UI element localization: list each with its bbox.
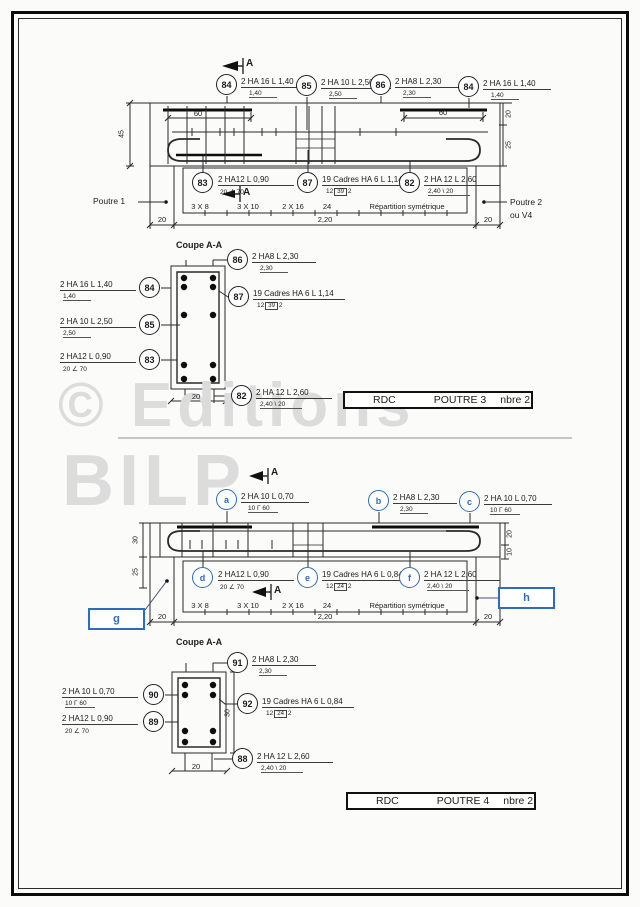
rebar-label-d: 2 HA12 L 0,90 [218,570,294,581]
callout-letter: b [376,496,382,506]
callout-87: 87 [297,172,318,193]
dim-end-20: 20 [478,612,498,621]
cut-label-a: A [271,467,278,478]
callout-number: 87 [233,292,243,302]
rebar-sub-c: 10 Γ 60 [490,507,520,515]
spacing-3x10: 3 X 10 [230,601,266,610]
rebar-sub-85: 2,50 [329,91,357,99]
callout-92: 92 [237,693,258,714]
callout-a: a [216,489,237,510]
callout-85: 85 [296,75,317,96]
cadre-height-boxed: 24 [334,583,347,591]
callout-84-coupe: 84 [139,277,160,298]
dim-coupe-height-30: 30 [225,709,232,717]
rebar-sub-a: 10 Γ 60 [248,505,278,513]
callout-85-coupe: 85 [139,314,160,335]
cadre-hook: 2 [348,188,352,195]
callout-f: f [399,567,420,588]
rebar-label-84b: 2 HA 16 L 1,40 [483,79,551,90]
cadre-dims-87: 12392 [326,188,352,196]
cadre-dims-e: 12242 [326,583,352,591]
spacing-3x10: 3 X 10 [230,202,266,211]
rebar-sub-f: 2,40 \ 20 [427,583,469,591]
watermark-bilp: BILP [62,440,246,522]
rebar-label-c: 2 HA 10 L 0,70 [484,494,552,505]
callout-number: 85 [144,320,154,330]
dim-coupe-width-20: 20 [186,762,206,771]
rebar-sub-b: 2,30 [400,506,428,514]
rebar-sub-88: 2,40 \ 20 [261,765,303,773]
cadre-hook: 2 [288,710,292,717]
beam2-bottom-bar-hooked [168,531,480,551]
cut-label-a: A [246,58,253,69]
dim-span-220: 2,20 [305,612,345,621]
rebar-label-f: 2 HA 12 L 2,60 [424,570,500,581]
callout-number: 86 [232,255,242,265]
rebar-label-86: 2 HA8 L 2,30 [395,77,459,88]
beam2-leaders-bottom [203,545,410,567]
dim-coupe-width-20: 20 [186,392,206,401]
coupe2-section [165,663,238,774]
callout-letter: c [467,497,472,507]
spacing-3x8: 3 X 8 [183,202,217,211]
callout-letter: e [305,573,310,583]
callout-number: 92 [242,699,252,709]
cadre-dims: 12392 [257,302,283,310]
drawing-sheet: © Editions BILP A A 84 2 HA 16 L 1,40 1,… [0,0,640,907]
dim-right-25: 25 [506,141,513,149]
dim-right-20: 20 [506,110,513,118]
title-block-poutre4: RDC POUTRE 4 nbre 2 [346,792,536,810]
spacing-2x16: 2 X 16 [275,601,311,610]
callout-d: d [192,567,213,588]
ref-letter: g [113,613,120,625]
dim-end-20: 20 [152,215,172,224]
rebar-label-90: 2 HA 10 L 0,70 [62,687,138,698]
rebar-sub-90: 10 Γ 60 [65,700,95,708]
support-label-ouv4: ou V4 [510,210,532,220]
cadre-width: 12 [257,302,264,309]
cadre-width: 12 [326,188,333,195]
title-block-poutre3: RDC POUTRE 3 nbre 2 [343,391,533,409]
dim-below-25: 25 [133,568,140,576]
cadre-height-boxed: 24 [274,710,287,718]
dim-height-30: 30 [133,536,140,544]
rebar-sub-84b: 1,40 [491,92,519,100]
callout-82: 82 [399,172,420,193]
section-cut-arrow-icon [252,587,266,597]
dim-right-10: 10 [507,548,514,556]
spacing-3x8: 3 X 8 [183,601,217,610]
coupe1-rebar-dots [181,275,216,382]
support-label-poutre1: Poutre 1 [93,196,125,206]
rebar-label-82: 2 HA 12 L 2,60 [424,175,500,186]
coupe-title: Coupe A-A [176,240,222,250]
rebar-sub-d: 20 ∠ 70 [220,583,254,591]
callout-number: 84 [463,82,473,92]
rebar-label: 2 HA 10 L 2,50 [60,317,136,328]
callout-84: 84 [216,74,237,95]
callout-number: 82 [404,178,414,188]
support-label-poutre2: Poutre 2 [510,197,542,207]
spacing-24: 24 [317,202,337,211]
title-count: nbre 2 [503,795,533,807]
spacing-2x16: 2 X 16 [275,202,311,211]
rebar-sub-82: 2,40 \ 20 [428,188,470,196]
rebar-label-89: 2 HA12 L 0,90 [62,714,138,725]
callout-number: 84 [144,283,154,293]
title-element: POUTRE 3 [434,394,487,406]
rebar-label: 2 HA 16 L 1,40 [60,280,136,291]
rebar-label-b: 2 HA8 L 2,30 [393,493,457,504]
callout-86: 86 [370,74,391,95]
rebar-sub-83: 20 ∠ 70 [220,188,254,196]
title-level: RDC [376,795,399,807]
dim-height-45: 45 [119,130,126,138]
callout-number: 86 [375,80,385,90]
cadre-width: 12 [266,710,273,717]
rebar-label-88: 2 HA 12 L 2,60 [257,752,333,763]
rebar-sub-86: 2,30 [403,90,431,98]
cadre-hook: 2 [279,302,283,309]
cadre-width: 12 [326,583,333,590]
cadre-height-boxed: 39 [334,188,347,196]
rebar-sub: 1,40 [63,293,91,301]
callout-b: b [368,490,389,511]
callout-number: 85 [301,81,311,91]
cadres-label: 19 Cadres HA 6 L 1,14 [253,289,345,300]
dim-right-20: 20 [507,530,514,538]
callout-letter: f [408,573,411,583]
callout-91: 91 [227,652,248,673]
callout-letter: a [224,495,229,505]
cadre-hook: 2 [348,583,352,590]
coupe2-stirrup [178,678,220,747]
rebar-label-a: 2 HA 10 L 0,70 [241,492,309,503]
callout-87-coupe: 87 [228,286,249,307]
cadre-height-boxed: 39 [265,302,278,310]
cadres-label-92: 19 Cadres HA 6 L 0,84 [262,697,354,708]
cadre-dims-92: 12242 [266,710,292,718]
dim-end-20: 20 [478,215,498,224]
callout-83-coupe: 83 [139,349,160,370]
ref-box-h: h [498,587,555,609]
dim-60-left: 60 [188,109,208,118]
coupe-title: Coupe A-A [176,637,222,647]
callout-c: c [459,491,480,512]
rebar-label: 2 HA 12 L 2,60 [256,388,332,399]
callout-number: 91 [232,658,242,668]
coupe2-rebar-dots [182,682,216,745]
rebar-sub: 2,30 [260,265,288,273]
rebar-label: 2 HA12 L 0,90 [60,352,136,363]
dim-span-220: 2,20 [305,215,345,224]
callout-number: 90 [148,690,158,700]
callout-84b: 84 [458,76,479,97]
callout-89: 89 [143,711,164,732]
spacing-repartition: Répartition symétrique [352,202,462,211]
title-element: POUTRE 4 [437,795,490,807]
callout-88: 88 [232,748,253,769]
title-level: RDC [373,394,396,406]
cut-label-a: A [274,585,281,596]
ref-letter: h [523,592,530,604]
dim-60-right: 60 [433,108,453,117]
callout-number: 83 [144,355,154,365]
callout-83: 83 [192,172,213,193]
section-cut-arrow-icon [249,471,263,481]
rebar-label-83: 2 HA12 L 0,90 [218,175,294,186]
rebar-sub: 2,50 [63,330,91,338]
dim-end-20: 20 [152,612,172,621]
callout-number: 82 [236,391,246,401]
callout-number: 89 [148,717,158,727]
title-count: nbre 2 [500,394,530,406]
callout-number: 87 [302,178,312,188]
spacing-24: 24 [317,601,337,610]
callout-82-coupe: 82 [231,385,252,406]
callout-86-coupe: 86 [227,249,248,270]
rebar-sub-84: 1,40 [249,90,277,98]
ref-box-g: g [88,608,145,630]
rebar-sub-89: 20 ∠ 70 [65,727,99,735]
rebar-sub-91: 2,30 [259,668,287,676]
beam1-bottom-bar-hooked [168,139,480,161]
rebar-label: 2 HA8 L 2,30 [252,252,316,263]
rebar-sub: 20 ∠ 70 [63,365,97,373]
rebar-label-91: 2 HA8 L 2,30 [252,655,316,666]
callout-90: 90 [143,684,164,705]
section-cut-arrow-icon [222,61,238,71]
callout-letter: d [200,573,206,583]
spacing-repartition: Répartition symétrique [352,601,462,610]
rebar-sub: 2,40 \ 20 [260,401,302,409]
callout-e: e [297,567,318,588]
callout-number: 88 [237,754,247,764]
callout-number: 83 [197,178,207,188]
callout-number: 84 [221,80,231,90]
